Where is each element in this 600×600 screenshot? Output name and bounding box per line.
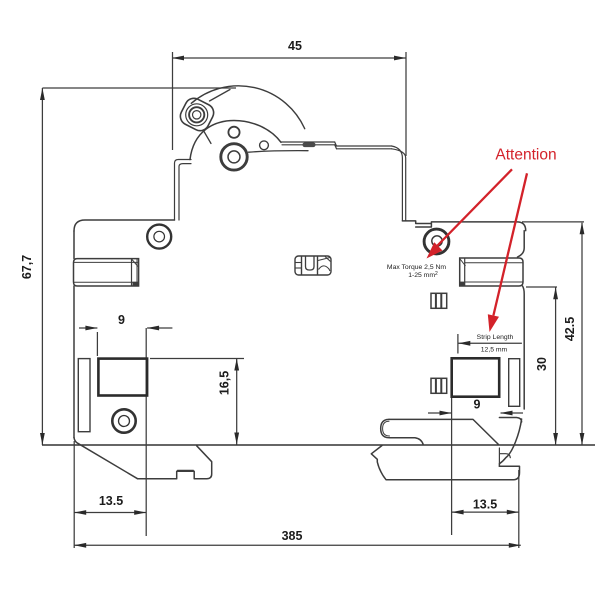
svg-text:42.5: 42.5	[563, 317, 577, 341]
svg-text:Max Torque 2,5 Nm: Max Torque 2,5 Nm	[387, 264, 447, 271]
svg-text:67,7: 67,7	[20, 255, 34, 279]
svg-text:13.5: 13.5	[473, 498, 497, 512]
svg-text:12,5 mm: 12,5 mm	[481, 347, 508, 354]
svg-text:Attention: Attention	[495, 147, 556, 164]
svg-text:9: 9	[118, 313, 125, 327]
svg-text:1-25 mm2: 1-25 mm2	[408, 271, 438, 279]
svg-text:13.5: 13.5	[99, 494, 123, 508]
svg-text:16,5: 16,5	[218, 371, 232, 395]
svg-text:45: 45	[288, 39, 302, 53]
svg-text:30: 30	[535, 357, 549, 371]
svg-text:385: 385	[282, 529, 303, 543]
svg-text:9: 9	[474, 398, 481, 412]
svg-text:Strip Length: Strip Length	[477, 334, 514, 341]
